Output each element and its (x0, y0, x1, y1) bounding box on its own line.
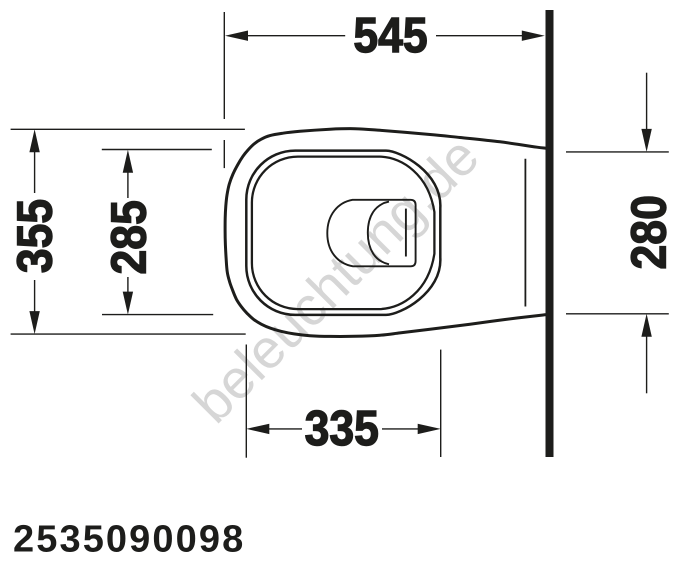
svg-text:335: 335 (305, 400, 379, 456)
svg-text:280: 280 (620, 195, 676, 269)
svg-text:355: 355 (6, 199, 62, 273)
svg-text:545: 545 (353, 7, 427, 63)
svg-text:285: 285 (100, 200, 156, 274)
svg-text:2535090098: 2535090098 (13, 519, 245, 561)
